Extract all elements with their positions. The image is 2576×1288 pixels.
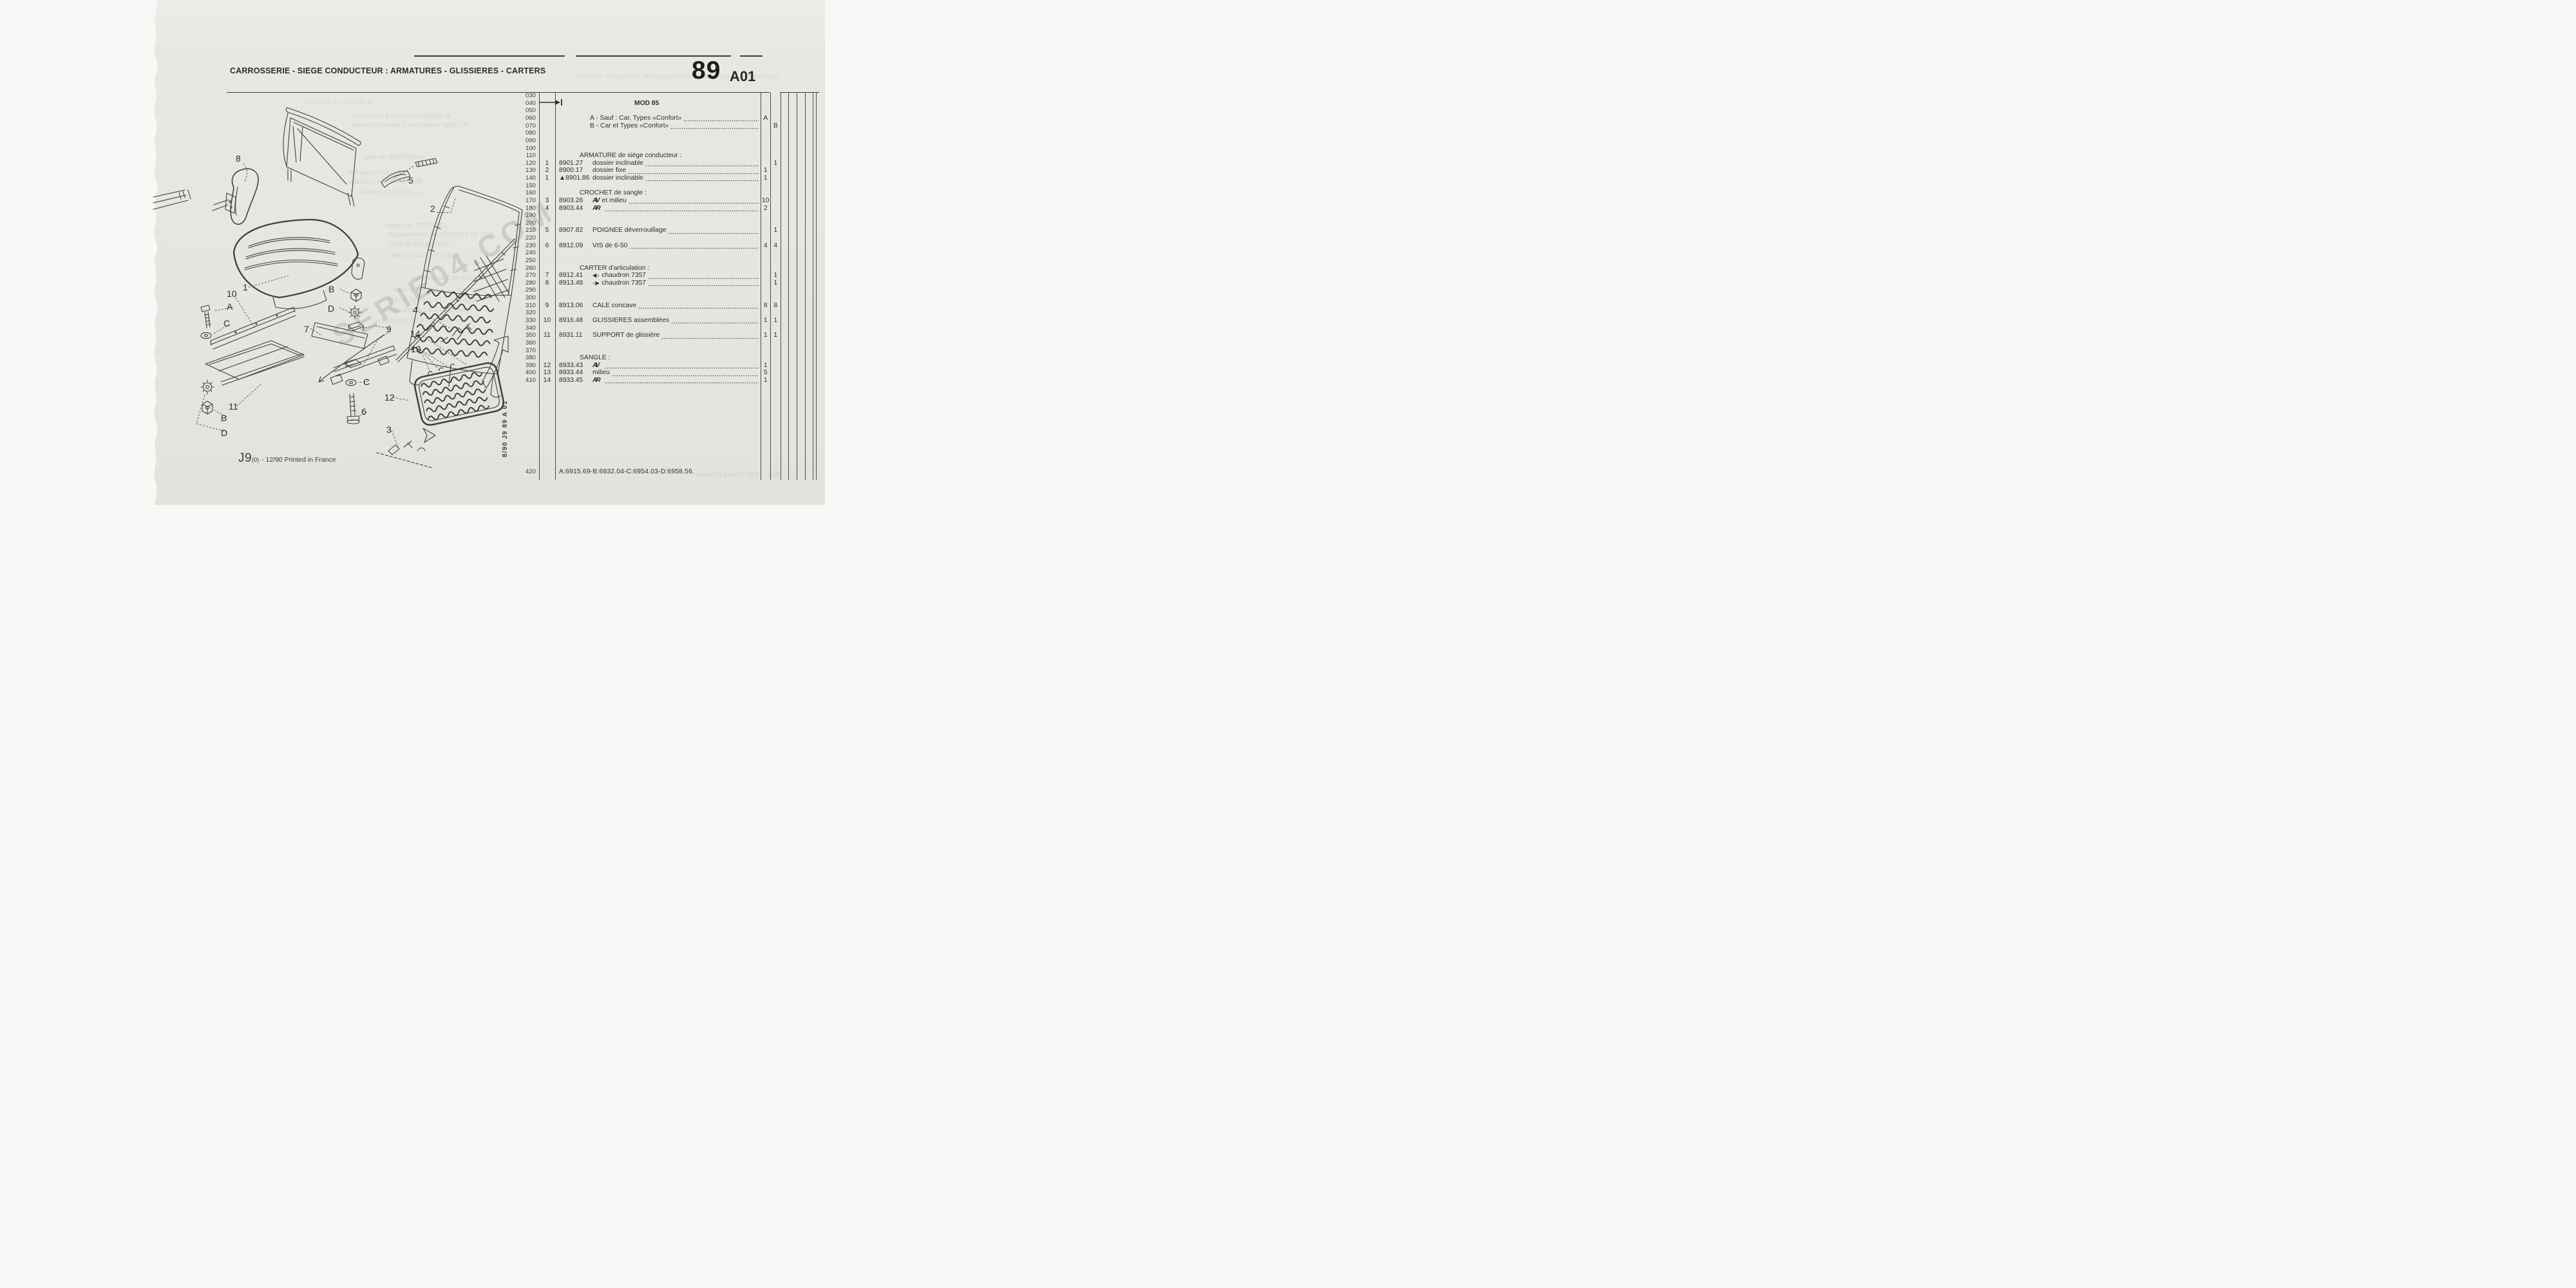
part-number: 8900.17 xyxy=(555,167,592,174)
qty-col-b: 1 xyxy=(771,332,781,339)
item-number: 13 xyxy=(539,369,555,376)
item-number: 1 xyxy=(539,160,555,167)
row-index-label: 400 xyxy=(513,369,536,376)
row-index-label: 230 xyxy=(513,242,536,249)
row-index-label: 160 xyxy=(513,189,536,196)
part-number: 8916.48 xyxy=(555,317,592,324)
part-description: VIS de 6-50 xyxy=(592,242,627,249)
part-number: 8913.06 xyxy=(555,302,592,309)
dot-leader xyxy=(604,363,759,369)
drawing-callout: D xyxy=(328,303,334,314)
bleedthrough-text: GLISSIERES assemblées xyxy=(410,275,485,282)
qty-col-b: 1 xyxy=(771,317,781,324)
drawing-callout: 12 xyxy=(384,392,395,402)
row-index-label: 220 xyxy=(513,234,536,241)
table-row: 68912.09VIS de 6-5044 xyxy=(539,241,781,249)
row-index-label: 390 xyxy=(513,362,536,369)
item-number: 8 xyxy=(539,279,555,287)
section-label: SANGLE : xyxy=(580,354,611,361)
part-number: ▲8901.86 xyxy=(555,175,592,182)
row-index-label: 110 xyxy=(513,152,536,159)
dot-leader xyxy=(629,198,759,204)
table-row: 1▲8901.86dossier inclinable1 xyxy=(539,175,781,182)
legend-label: B - Car et Types «Confort» xyxy=(590,122,668,129)
dot-leader xyxy=(605,206,759,212)
qty-col-b: 4 xyxy=(771,242,781,249)
dot-leader xyxy=(645,176,759,182)
drawing-callout: 10 xyxy=(227,289,237,299)
bleedthrough-text: A - Siège conducteur à dossier fixe xyxy=(351,113,451,120)
part-number: 8901.27 xyxy=(555,160,592,167)
drawing-callout: B xyxy=(328,284,334,294)
spine-code: 8/90 J9 89 A 01 xyxy=(502,401,509,457)
part-description: GLISSIERES assemblées xyxy=(592,317,669,324)
table-row: MOD 85 xyxy=(539,99,781,107)
part-description: CALE concave xyxy=(592,302,636,309)
bleedthrough-text: 8900.17 dossier fixe xyxy=(348,169,406,176)
item-number: 14 xyxy=(539,377,555,384)
row-index-label: 080 xyxy=(513,129,536,137)
drawing-callout: 6 xyxy=(361,406,366,417)
part-number: 8931.11 xyxy=(555,332,592,339)
footer-print-info: - 12/90 Printed in France xyxy=(261,456,336,464)
qty-col-a: 1 xyxy=(761,377,771,384)
table-rule xyxy=(788,92,789,480)
part-description: milieu xyxy=(592,369,610,376)
drawing-callout: C xyxy=(223,318,230,328)
row-index-label: 210 xyxy=(513,227,536,234)
dot-leader xyxy=(645,161,759,167)
dot-leader xyxy=(612,371,759,377)
position-symbol: AR xyxy=(592,205,600,212)
item-number: 6 xyxy=(539,242,555,249)
footer: J9 (0) - 12/90 Printed in France xyxy=(238,451,336,466)
scanned-parts-catalog-page: { "page": { "header_title": "CARROSSERIE… xyxy=(0,0,1010,505)
row-index-label: 360 xyxy=(513,339,536,346)
drawing-callout: 13 xyxy=(411,344,421,354)
bleedthrough-text: 8912.09 VIS de 6-50 xyxy=(389,241,448,249)
table-row: CARTER d'articulation : xyxy=(539,264,781,272)
part-number: 8903.44 xyxy=(555,205,592,212)
drawing-callout: 1 xyxy=(243,282,248,292)
position-symbol: ◁▶ xyxy=(592,280,598,286)
item-number: 1 xyxy=(539,175,555,182)
row-index-label: 270 xyxy=(513,272,536,279)
table-row: A - Sauf : Car, Types «Confort»A xyxy=(539,115,781,122)
row-index-label: 340 xyxy=(513,325,536,332)
position-symbol: AV xyxy=(592,197,599,204)
part-number: 8933.45 xyxy=(555,377,592,384)
qty-col-b: 8 xyxy=(771,302,781,309)
table-row: 18901.27dossier inclinable1 xyxy=(539,159,781,167)
row-index-label: 170 xyxy=(513,197,536,204)
row-index-label: 180 xyxy=(513,205,536,212)
dot-leader xyxy=(638,303,759,309)
drawing-callout: B xyxy=(221,413,227,423)
row-index-label: 040 xyxy=(513,100,536,107)
row-index-label: 410 xyxy=(513,377,536,384)
bleedthrough-text: vison clair —| 4.126.100 environ xyxy=(393,287,485,294)
row-index-label: 240 xyxy=(513,249,536,256)
dot-leader xyxy=(605,378,759,384)
item-number: 12 xyxy=(539,362,555,369)
table-row: 138933.44milieu5 xyxy=(539,369,781,377)
row-index-label: 250 xyxy=(513,257,536,264)
qty-col-a: 1 xyxy=(761,167,771,174)
footer-model-variant: (0) xyxy=(252,457,259,463)
part-description: chaudron 7357 xyxy=(601,272,646,279)
table-row: 88913.48◁▶chaudron 73571 xyxy=(539,279,781,287)
table-row: 128933.43AV1 xyxy=(539,361,781,369)
table-row: SANGLE : xyxy=(539,354,781,362)
qty-col-a: 1 xyxy=(761,317,771,324)
footer-model: J9 xyxy=(238,451,252,466)
row-index-label: 120 xyxy=(513,160,536,167)
table-rule xyxy=(797,92,797,480)
part-number: 8912.09 xyxy=(555,242,592,249)
table-rule xyxy=(227,92,770,93)
qty-col-b: 1 xyxy=(771,160,781,167)
table-row: ARMATURE de siège conducteur : xyxy=(539,152,781,160)
row-index-label: 100 xyxy=(513,145,536,152)
part-description: chaudron 7357 xyxy=(601,279,646,287)
qty-col-a: 1 xyxy=(761,175,771,182)
page-title: CARROSSERIE - SIEGE CONDUCTEUR : ARMATUR… xyxy=(230,66,545,75)
section-label: CARTER d'articulation : xyxy=(580,265,649,272)
table-row: A:6915.69-B:6932.04-C:6954.03-D:6958.56. xyxy=(539,468,781,476)
item-number: 10 xyxy=(539,317,555,324)
row-index-label: 260 xyxy=(513,265,536,272)
drawing-callout: 5 xyxy=(408,175,413,185)
table-rule xyxy=(414,55,565,57)
table-row: 38903.26AVet milieu10 xyxy=(539,197,781,205)
drawing-callout: 4 xyxy=(413,305,418,315)
table-row: 48903.44AR2 xyxy=(539,204,781,212)
part-number: 8933.44 xyxy=(555,369,592,376)
bleedthrough-text: CROCHET de sangle xyxy=(385,222,446,229)
table-rule xyxy=(816,92,817,480)
part-description: SUPPORT de glissière xyxy=(592,332,659,339)
dot-leader xyxy=(648,274,759,279)
dot-leader xyxy=(648,281,759,287)
table-row: 148933.45AR1 xyxy=(539,377,781,384)
item-number: 5 xyxy=(539,227,555,234)
qty-col-a: 4 xyxy=(761,242,771,249)
item-number: 7 xyxy=(539,272,555,279)
bleedthrough-text: vison clair |— 4.126.101 environ xyxy=(380,307,472,314)
row-index-label: 370 xyxy=(513,347,536,354)
item-number: 11 xyxy=(539,332,555,339)
row-index-label: 310 xyxy=(513,302,536,309)
part-number: 8912.41 xyxy=(555,272,592,279)
part-number: 8913.48 xyxy=(555,279,592,287)
table-row: CROCHET de sangle : xyxy=(539,189,781,197)
row-index-label: 350 xyxy=(513,332,536,339)
qty-col-a: 10 xyxy=(761,197,771,204)
bleedthrough-text: vison clair —| 4.126.100 environ xyxy=(386,297,478,304)
qty-col-a: A xyxy=(761,115,771,122)
table-row: 98913.06CALE concave88 xyxy=(539,301,781,309)
qty-col-b: B xyxy=(771,122,781,129)
row-index-label: 290 xyxy=(513,287,536,294)
drawing-callout: 3 xyxy=(386,424,392,435)
table-rule xyxy=(740,55,762,57)
table-rule xyxy=(813,92,813,480)
qty-col-b: 1 xyxy=(771,272,781,279)
dot-leader xyxy=(683,116,759,122)
item-number: 9 xyxy=(539,302,555,309)
item-number: 3 xyxy=(539,197,555,204)
dot-leader xyxy=(671,318,759,324)
qty-col-a: 1 xyxy=(761,362,771,369)
legend-label: A - Sauf : Car, Types «Confort» xyxy=(590,115,681,122)
dot-leader xyxy=(628,169,759,175)
table-row: 108916.48GLISSIERES assemblées11 xyxy=(539,317,781,325)
mod-label: MOD 85 xyxy=(634,100,659,107)
row-index-label: 280 xyxy=(513,279,536,287)
dot-leader xyxy=(668,229,759,234)
row-index-label: 060 xyxy=(513,115,536,122)
part-description: POIGNEE déverrouillage xyxy=(592,227,666,234)
part-description: dossier inclinable xyxy=(592,175,643,182)
part-description: dossier fixe xyxy=(592,167,626,174)
row-index-label: 150 xyxy=(513,182,536,189)
drawing-callout: 7 xyxy=(304,324,309,334)
section-label: ARMATURE de siège conducteur : xyxy=(580,152,681,159)
qty-col-a: 5 xyxy=(761,369,771,376)
qty-col-a: 8 xyxy=(761,302,771,309)
drawing-callout: 9 xyxy=(386,324,392,334)
dot-leader xyxy=(629,243,759,249)
row-index-label: 140 xyxy=(513,175,536,182)
table-row: B - Car et Types «Confort»B xyxy=(539,122,781,129)
mod-arrow-icon xyxy=(539,99,563,106)
drawing-callout: D xyxy=(221,428,227,438)
item-number: 4 xyxy=(539,205,555,212)
table-row: 28900.17dossier fixe1 xyxy=(539,167,781,175)
qty-col-a: 2 xyxy=(761,205,771,212)
drawing-callout: 8 xyxy=(236,153,241,164)
part-description: dossier inclinable xyxy=(592,160,643,167)
row-index-label: 130 xyxy=(513,167,536,174)
part-number: 8907.82 xyxy=(555,227,592,234)
qty-col-b: 1 xyxy=(771,227,781,234)
bleedthrough-text: |→ 4.126.101 environ xyxy=(361,189,422,196)
drawing-callout: C xyxy=(363,377,370,387)
row-index-label: 420 xyxy=(513,468,536,475)
part-description: et milieu xyxy=(602,197,627,204)
row-index-label: 190 xyxy=(513,212,536,219)
part-number: 8933.43 xyxy=(555,362,592,369)
position-symbol: AR xyxy=(592,377,600,384)
position-symbol: AV xyxy=(592,362,599,369)
row-index-label: 330 xyxy=(513,317,536,324)
row-index-label: 050 xyxy=(513,107,536,114)
page-code: A01 xyxy=(730,68,755,85)
section-label: CROCHET de sangle : xyxy=(580,189,647,196)
mod-marker: MOD 85 xyxy=(634,100,659,107)
bleedthrough-text: 8907.82 POIGNEE de déverrouillage xyxy=(388,231,493,238)
reference-footnote: A:6915.69-B:6932.04-C:6954.03-D:6958.56. xyxy=(559,468,694,475)
row-index-label: 300 xyxy=(513,294,536,301)
item-number: 2 xyxy=(539,167,555,174)
row-index-label: 090 xyxy=(513,137,536,144)
drawing-callout: 2 xyxy=(430,204,435,214)
row-index-label: 320 xyxy=(513,309,536,316)
page-number: 89 xyxy=(692,57,721,85)
bleedthrough-text: ARMATURE de siège : xyxy=(358,154,424,161)
row-index-label: 070 xyxy=(513,122,536,129)
bleedthrough-text: |→ 4.120.001 —| 4.131.000 xyxy=(303,99,382,106)
qty-col-a: 1 xyxy=(761,332,771,339)
row-index-label: 030 xyxy=(513,92,536,99)
row-index-label: 380 xyxy=(513,354,536,361)
table-row: 118931.11SUPPORT de glissière11 xyxy=(539,332,781,339)
table-rule xyxy=(805,92,806,480)
drawing-callout: A xyxy=(227,301,232,312)
dot-leader xyxy=(661,334,759,339)
part-number: 8903.26 xyxy=(555,197,592,204)
drawing-callout: 11 xyxy=(229,401,238,412)
bleedthrough-text: B - Siège conducteur à dossier inclinabl… xyxy=(351,122,468,129)
row-index-label: 200 xyxy=(513,220,536,227)
drawing-callout: 14 xyxy=(410,328,421,339)
position-symbol: ◀▷ xyxy=(592,272,598,278)
bleedthrough-text: 8913.08 CALE concave xyxy=(390,252,458,259)
qty-col-b: 1 xyxy=(771,279,781,287)
dot-leader xyxy=(670,124,759,129)
table-row: 78912.41◀▷chaudron 73571 xyxy=(539,272,781,279)
table-row: 58907.82POIGNEE déverrouillage1 xyxy=(539,227,781,234)
